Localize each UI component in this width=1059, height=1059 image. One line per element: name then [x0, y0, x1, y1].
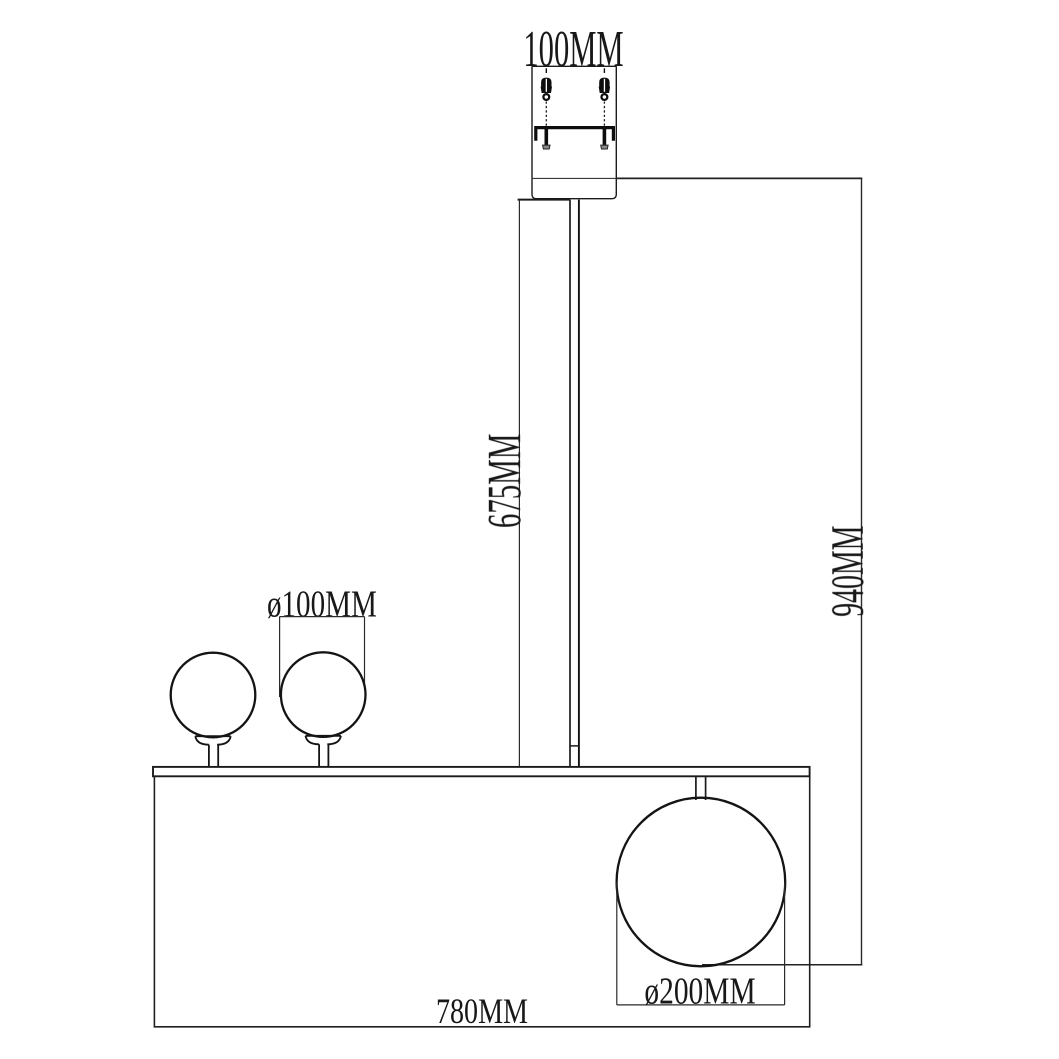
svg-text:940MM: 940MM [823, 526, 874, 617]
svg-text:ø200MM: ø200MM [644, 971, 755, 1012]
svg-text:780MM: 780MM [436, 991, 528, 1031]
svg-text:100MM: 100MM [523, 21, 623, 78]
svg-text:ø100MM: ø100MM [267, 584, 377, 626]
svg-text:675MM: 675MM [478, 434, 531, 528]
